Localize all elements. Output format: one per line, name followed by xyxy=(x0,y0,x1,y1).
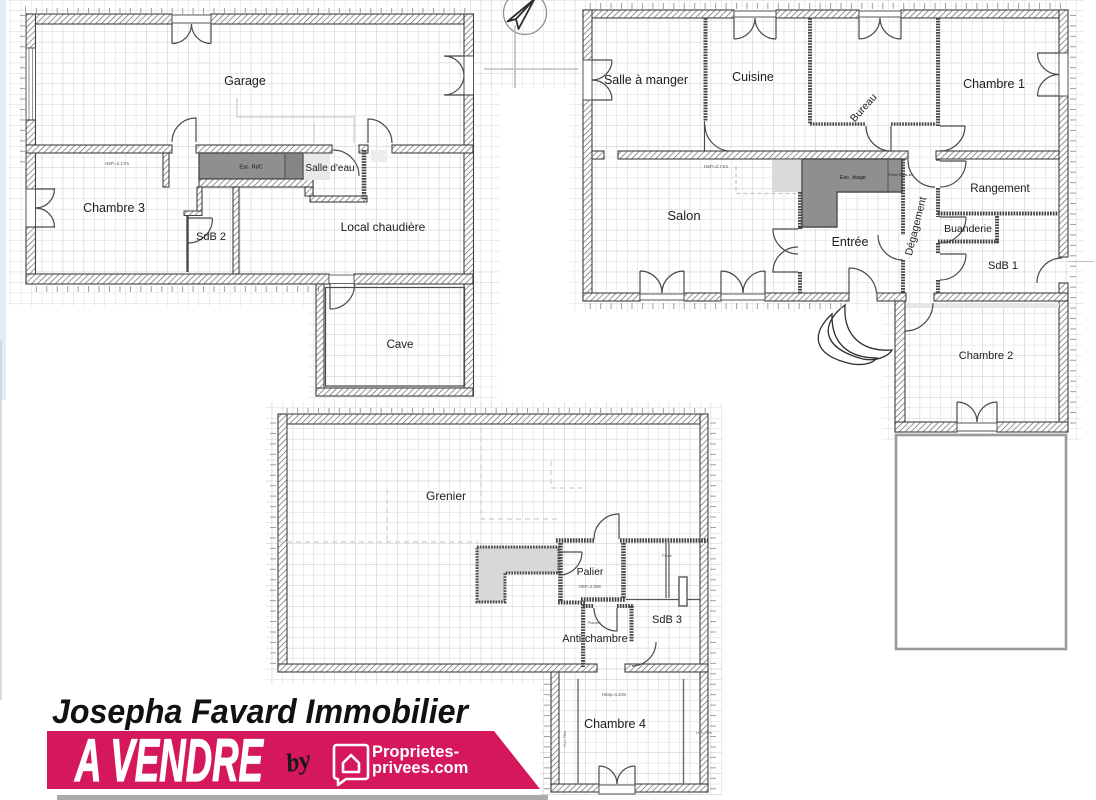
svg-text:Chambre 2: Chambre 2 xyxy=(959,350,1013,362)
svg-text:Salle d'eau: Salle d'eau xyxy=(305,163,354,174)
svg-text:Cuisine: Cuisine xyxy=(732,70,774,84)
svg-text:Salle à manger: Salle à manger xyxy=(604,73,688,87)
svg-text:SdB 2: SdB 2 xyxy=(196,231,226,243)
svg-text:SdB 1: SdB 1 xyxy=(988,260,1018,272)
svg-text:Garage: Garage xyxy=(224,74,266,88)
svg-text:H=1.79m: H=1.79m xyxy=(563,731,567,747)
svg-text:privees.com: privees.com xyxy=(372,759,468,777)
svg-text:Anti-chambre: Anti-chambre xyxy=(562,633,627,645)
svg-text:H=0.75m: H=0.75m xyxy=(696,731,712,735)
svg-text:Local chaudière: Local chaudière xyxy=(341,220,426,234)
svg-text:Cave: Cave xyxy=(387,339,414,351)
svg-text:Salon: Salon xyxy=(667,208,700,223)
svg-text:Josepha Favard Immobilier: Josepha Favard Immobilier xyxy=(52,693,470,731)
svg-text:Grenier: Grenier xyxy=(426,489,466,503)
svg-text:HSsp=4.10m: HSsp=4.10m xyxy=(602,692,627,697)
svg-text:Rangement: Rangement xyxy=(970,183,1030,195)
svg-text:Chambre 4: Chambre 4 xyxy=(584,717,646,731)
svg-text:Pente: Pente xyxy=(662,554,671,558)
svg-text:Palier: Palier xyxy=(577,566,604,578)
svg-text:Esc. étage: Esc. étage xyxy=(840,175,866,181)
svg-text:A VENDRE: A VENDRE xyxy=(74,727,264,794)
svg-text:Esc. RdC: Esc. RdC xyxy=(239,165,262,171)
svg-text:Chambre 3: Chambre 3 xyxy=(83,201,145,215)
svg-text:Placard: Placard xyxy=(588,621,601,625)
svg-text:Entrée: Entrée xyxy=(832,235,869,249)
svg-text:Chambre 1: Chambre 1 xyxy=(963,77,1025,91)
svg-text:Buanderie: Buanderie xyxy=(944,223,992,235)
svg-text:HSP=2.39m: HSP=2.39m xyxy=(579,584,602,589)
svg-text:SdB 3: SdB 3 xyxy=(652,614,682,626)
svg-text:HSP=2.17m: HSP=2.17m xyxy=(105,161,130,166)
svg-text:HSP=2.71m: HSP=2.71m xyxy=(704,164,729,169)
